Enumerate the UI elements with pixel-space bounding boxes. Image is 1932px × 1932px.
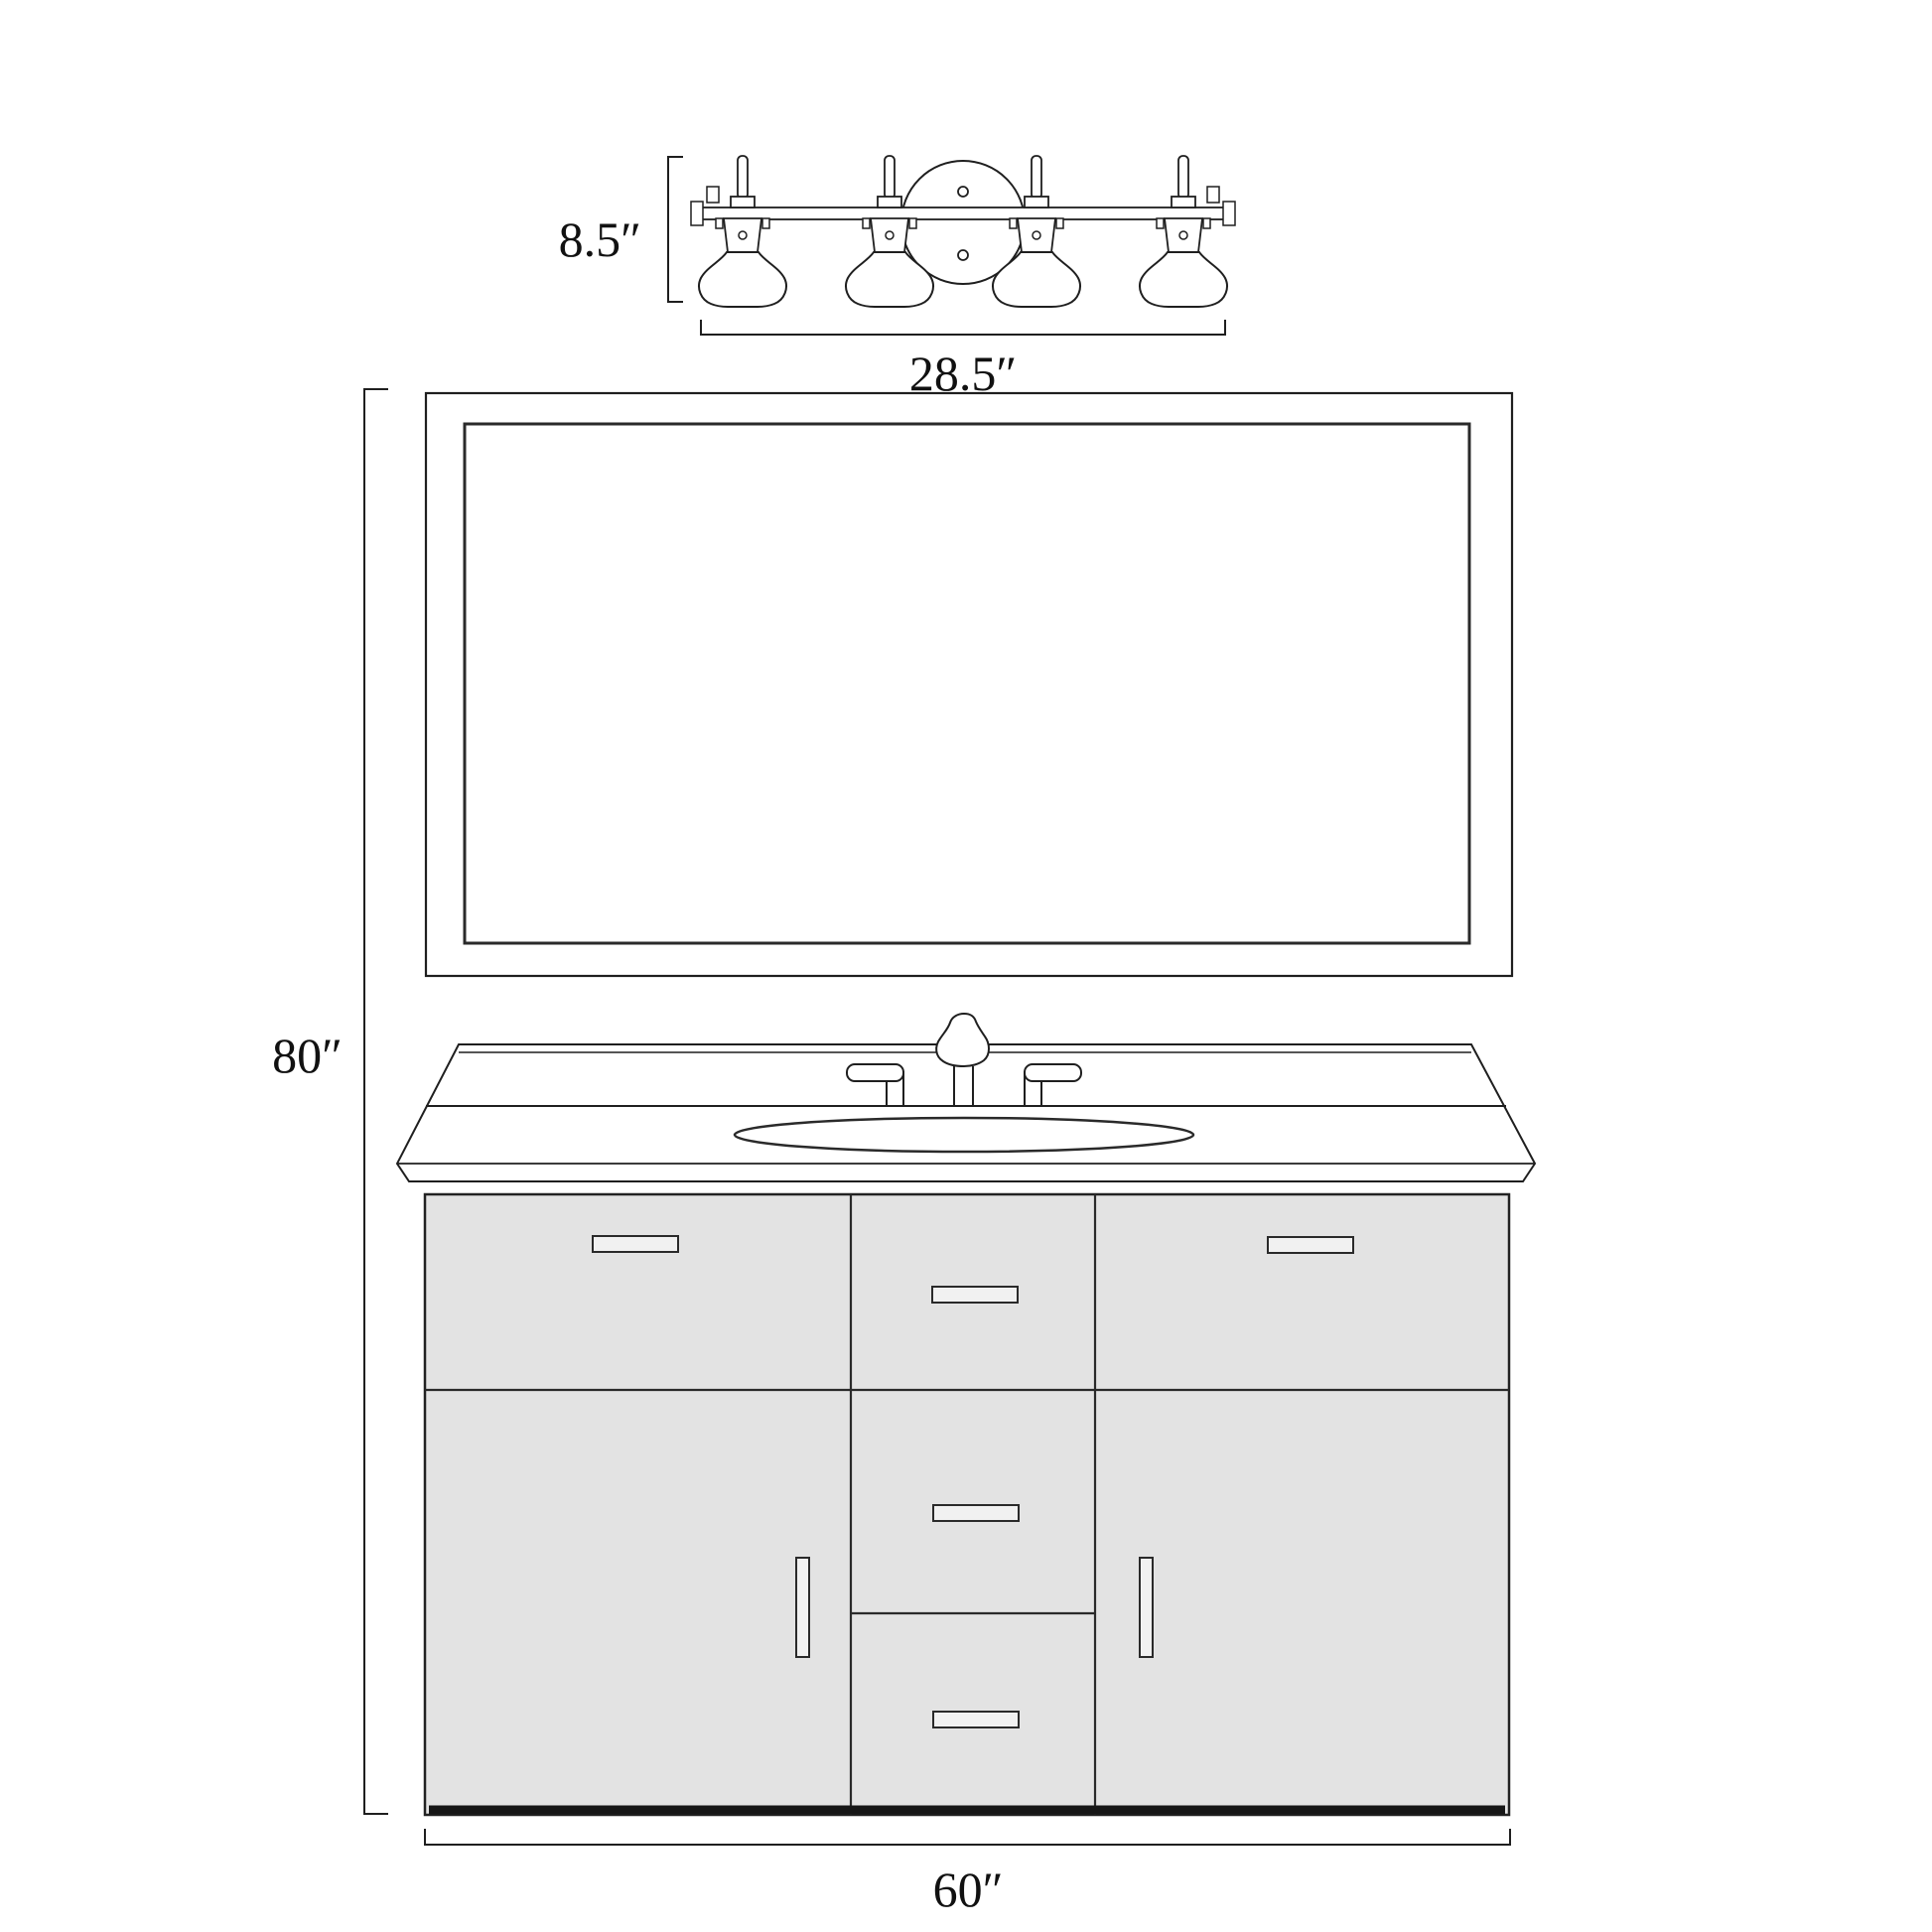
dimension-label-light-height: 8.5″ [559,211,641,267]
right-door-handle [1140,1558,1153,1657]
right-drawer-handle [1268,1237,1353,1253]
center-drawer-handle-3 [933,1712,1019,1727]
sink-basin [735,1118,1193,1152]
faucet-spout [936,1014,989,1066]
fixture-light-4 [1140,156,1227,307]
fixture-bar-endcap-left [691,202,703,225]
dimension-vanity-width: 60″ [425,1829,1510,1917]
fixture-mount-tab-right [1207,187,1219,203]
faucet-handle-left [847,1064,903,1081]
fixture-light-1 [699,156,786,307]
dimension-overall-height: 80″ [272,389,388,1814]
faucet-handle-right [1025,1064,1081,1081]
fixture-bar-endcap-right [1223,202,1235,225]
center-drawer-handle-1 [932,1287,1018,1303]
dimension-label-vanity-width: 60″ [933,1862,1004,1917]
backplate-screw-top [958,187,968,197]
fixture-bar [701,207,1225,219]
fixture-mount-tab-left [707,187,719,203]
countertop [397,1014,1535,1181]
mirror-glass [465,424,1469,943]
vanity-dimension-diagram: 8.5″ 28.5″ 80″ [0,0,1932,1932]
left-drawer-handle [593,1236,678,1252]
light-fixture [691,156,1235,307]
vanity-cabinet [425,1194,1509,1815]
backplate-screw-bottom [958,250,968,260]
center-drawer-handle-2 [933,1505,1019,1521]
dimension-light-height: 8.5″ [559,157,683,302]
mirror [426,393,1512,976]
dimension-label-overall-height: 80″ [272,1028,343,1083]
diagram-drawing: 8.5″ 28.5″ 80″ [0,0,1932,1932]
left-door-handle [796,1558,809,1657]
dimension-light-width: 28.5″ [701,320,1225,401]
